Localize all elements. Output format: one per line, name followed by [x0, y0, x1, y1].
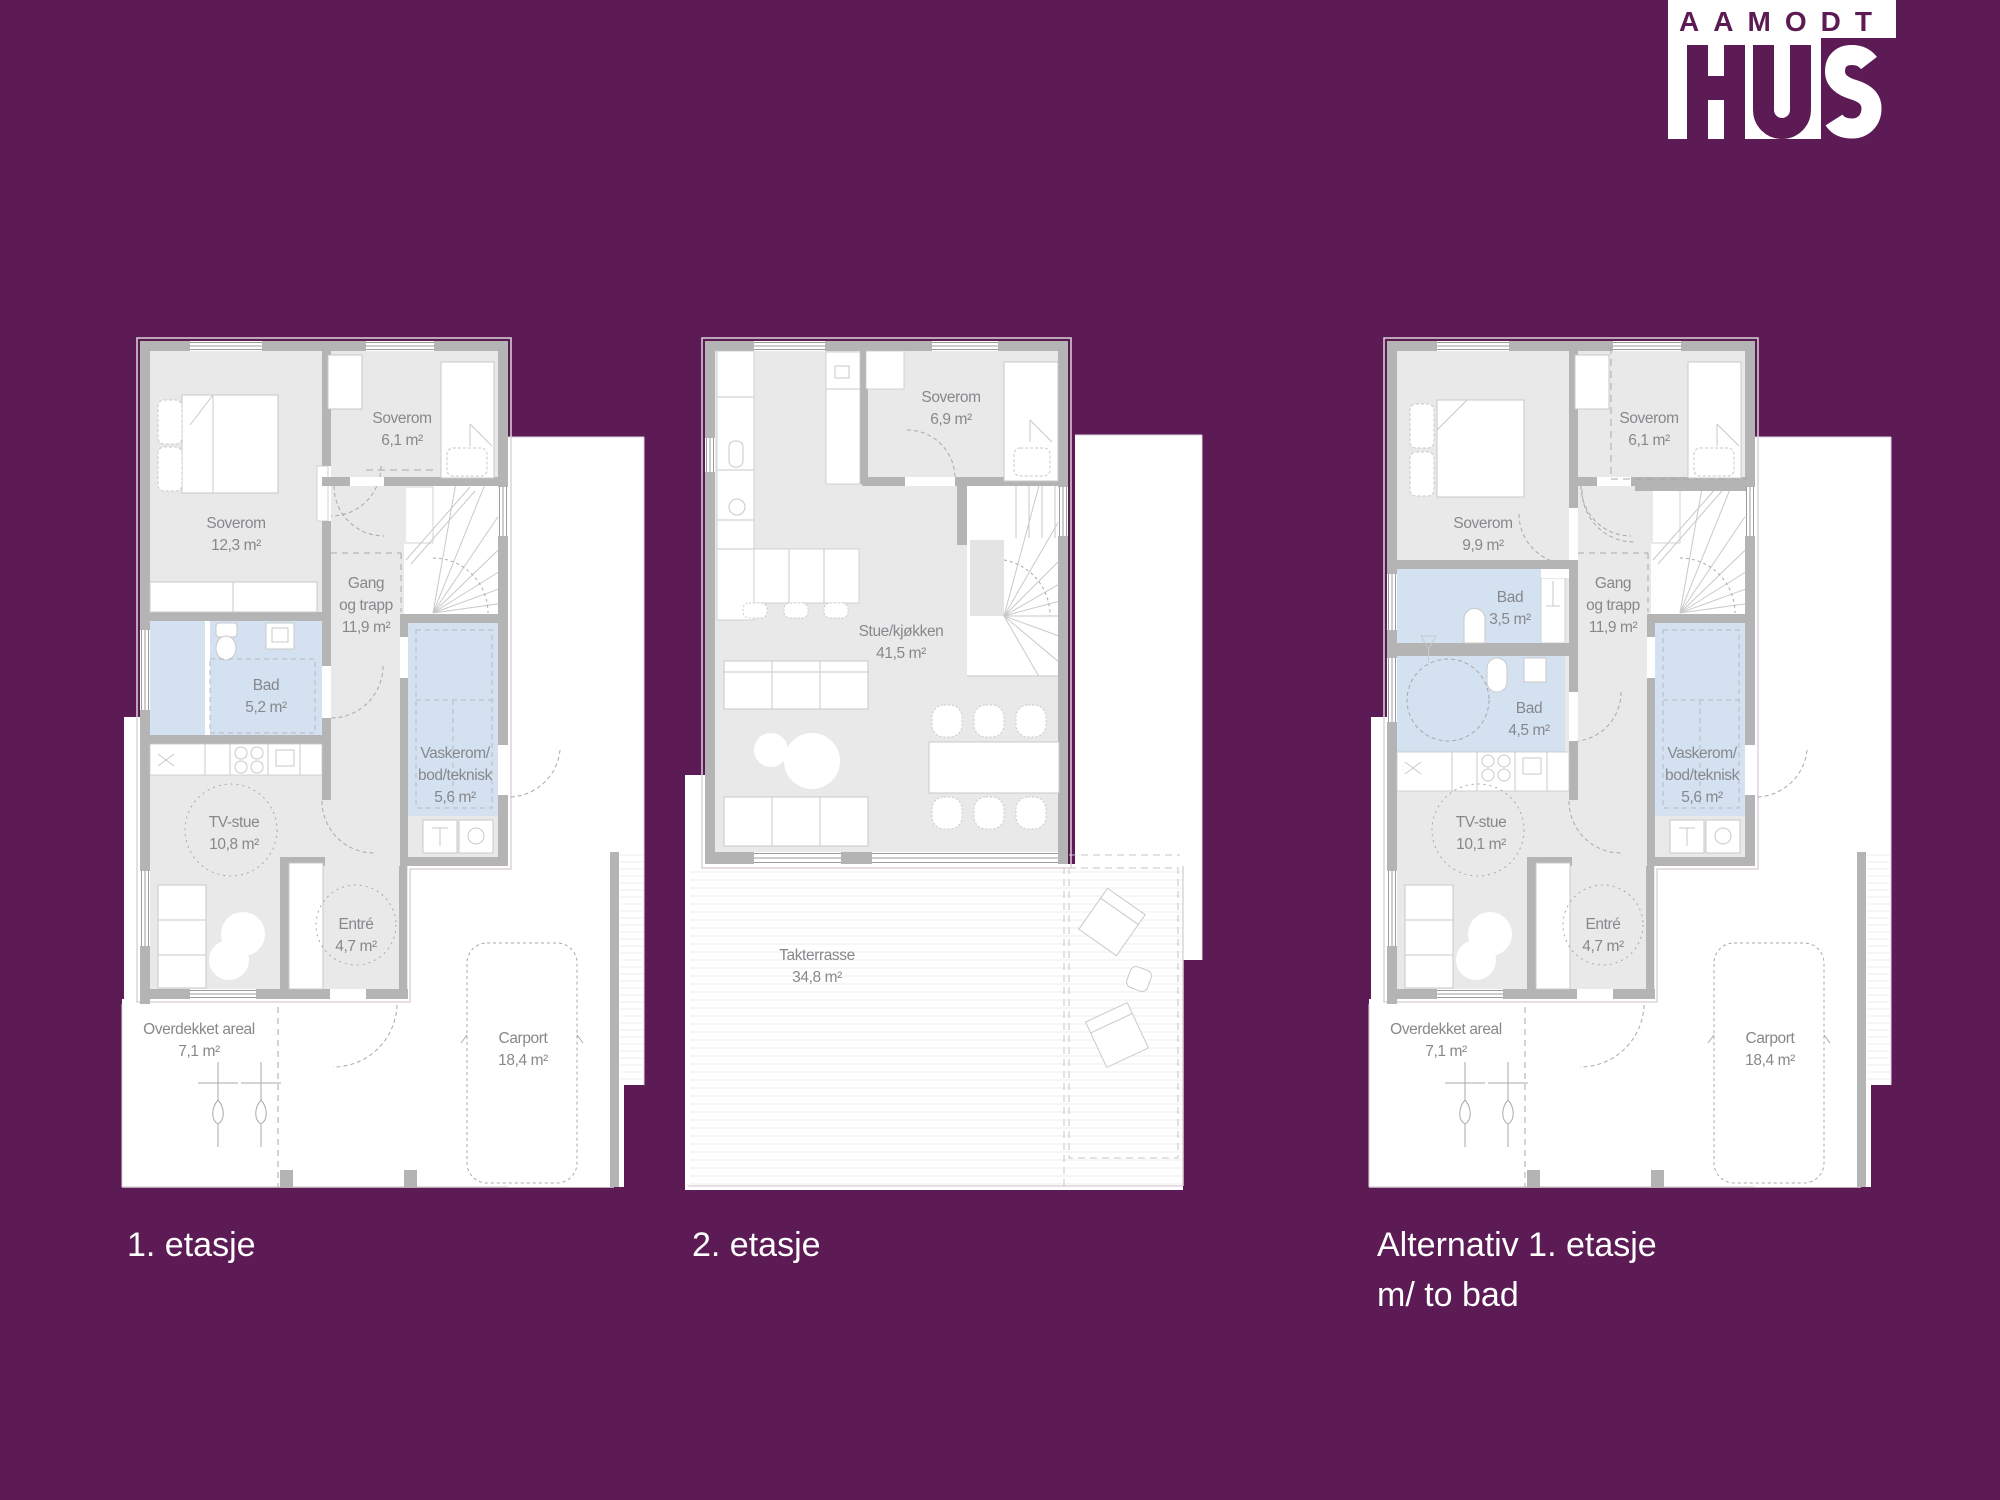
svg-text:Carport: Carport: [1746, 1030, 1796, 1047]
svg-text:bod/teknisk: bod/teknisk: [1665, 767, 1740, 784]
svg-text:Overdekket areal: Overdekket areal: [143, 1021, 255, 1038]
svg-text:Bad: Bad: [1497, 589, 1523, 606]
svg-text:1. etasje: 1. etasje: [127, 1226, 256, 1264]
svg-text:11,9 m²: 11,9 m²: [342, 619, 391, 636]
svg-text:TV-stue: TV-stue: [209, 814, 260, 831]
svg-text:TV-stue: TV-stue: [1456, 814, 1507, 831]
svg-text:5,6 m²: 5,6 m²: [1681, 789, 1723, 806]
svg-text:4,7 m²: 4,7 m²: [1582, 938, 1624, 955]
svg-text:bod/teknisk: bod/teknisk: [418, 767, 493, 784]
svg-text:4,7 m²: 4,7 m²: [335, 938, 377, 955]
svg-text:Soverom: Soverom: [372, 410, 431, 427]
svg-text:Bad: Bad: [253, 677, 279, 694]
svg-text:m/ to bad: m/ to bad: [1377, 1276, 1519, 1314]
svg-text:AAMODT: AAMODT: [1679, 6, 1889, 37]
svg-text:og trapp: og trapp: [1586, 597, 1640, 614]
svg-text:og trapp: og trapp: [339, 597, 393, 614]
svg-text:Overdekket areal: Overdekket areal: [1390, 1021, 1502, 1038]
svg-text:7,1 m²: 7,1 m²: [1425, 1043, 1467, 1060]
svg-text:Carport: Carport: [499, 1030, 549, 1047]
svg-text:Takterrasse: Takterrasse: [779, 947, 855, 964]
svg-text:5,2 m²: 5,2 m²: [245, 699, 287, 716]
svg-text:18,4 m²: 18,4 m²: [498, 1052, 548, 1069]
svg-text:Soverom: Soverom: [1619, 410, 1678, 427]
svg-text:41,5 m²: 41,5 m²: [876, 645, 926, 662]
svg-text:Soverom: Soverom: [921, 389, 980, 406]
svg-text:Bad: Bad: [1516, 700, 1542, 717]
svg-text:6,1 m²: 6,1 m²: [1628, 432, 1670, 449]
svg-text:7,1 m²: 7,1 m²: [178, 1043, 220, 1060]
svg-text:Entré: Entré: [1585, 916, 1620, 933]
svg-text:5,6 m²: 5,6 m²: [434, 789, 476, 806]
svg-text:12,3 m²: 12,3 m²: [211, 537, 261, 554]
svg-text:11,9 m²: 11,9 m²: [1589, 619, 1638, 636]
svg-text:Entré: Entré: [338, 916, 373, 933]
svg-text:Vaskerom/: Vaskerom/: [420, 745, 490, 762]
svg-text:9,9 m²: 9,9 m²: [1462, 537, 1504, 554]
svg-text:Gang: Gang: [348, 575, 384, 592]
svg-text:Soverom: Soverom: [1453, 515, 1512, 532]
svg-text:Soverom: Soverom: [206, 515, 265, 532]
svg-text:Gang: Gang: [1595, 575, 1631, 592]
svg-text:Stue/kjøkken: Stue/kjøkken: [859, 623, 944, 640]
svg-text:10,1 m²: 10,1 m²: [1456, 836, 1506, 853]
svg-text:3,5 m²: 3,5 m²: [1489, 611, 1531, 628]
svg-text:18,4 m²: 18,4 m²: [1745, 1052, 1795, 1069]
svg-text:Vaskerom/: Vaskerom/: [1667, 745, 1737, 762]
svg-text:34,8 m²: 34,8 m²: [792, 969, 842, 986]
svg-text:Alternativ 1. etasje: Alternativ 1. etasje: [1377, 1226, 1657, 1264]
svg-text:6,1 m²: 6,1 m²: [381, 432, 423, 449]
svg-text:4,5 m²: 4,5 m²: [1508, 722, 1550, 739]
svg-text:6,9 m²: 6,9 m²: [930, 411, 972, 428]
svg-text:10,8 m²: 10,8 m²: [209, 836, 259, 853]
svg-text:2. etasje: 2. etasje: [692, 1226, 821, 1264]
